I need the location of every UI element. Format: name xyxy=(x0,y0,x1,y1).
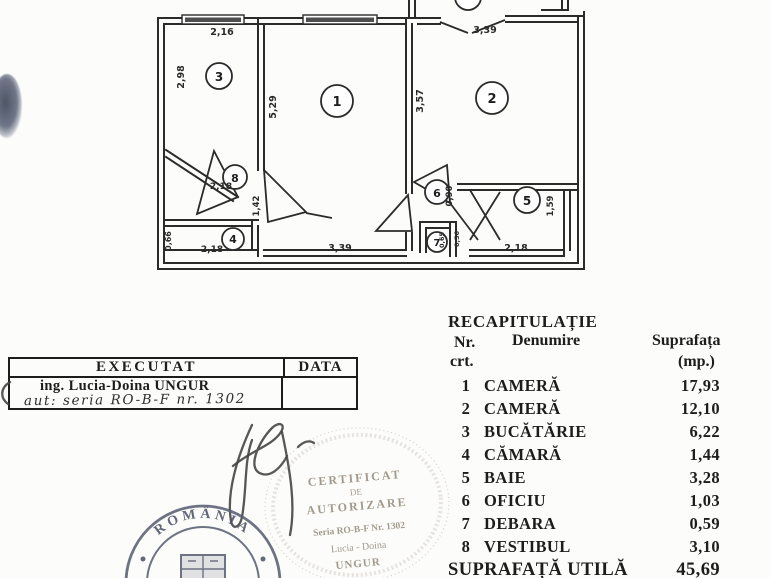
certificate-stamp: CERTIFICAT DE AUTORIZARE Seria RO-B-F Nr… xyxy=(259,420,456,578)
romania-stamp: ROMÂNIA xyxy=(126,505,280,578)
romania-stamp-dot xyxy=(141,557,146,562)
certificate-line-6: UNGUR xyxy=(335,556,381,572)
certificate-line-1: CERTIFICAT xyxy=(307,467,402,489)
coat-of-arms xyxy=(181,555,225,578)
certificate-line-2: DE xyxy=(349,487,362,498)
certificate-line-5: Lucia - Doina xyxy=(331,540,388,556)
signature-stroke xyxy=(282,432,292,535)
romania-stamp-country-text: ROMÂNIA xyxy=(152,505,255,539)
stamps-layer: CERTIFICAT DE AUTORIZARE Seria RO-B-F Nr… xyxy=(0,0,770,578)
certificate-line-4: Seria RO-B-F Nr. 1302 xyxy=(313,521,406,539)
scanned-document-page: 1 2 3 4 5 6 7 8 2,16 2,98 5,29 3,39 3,57… xyxy=(0,0,770,578)
romania-stamp-dot xyxy=(261,557,266,562)
romania-stamp-country: ROMÂNIA xyxy=(152,505,255,539)
certificate-line-3: AUTORIZARE xyxy=(306,495,408,518)
pen-mark xyxy=(2,382,10,404)
